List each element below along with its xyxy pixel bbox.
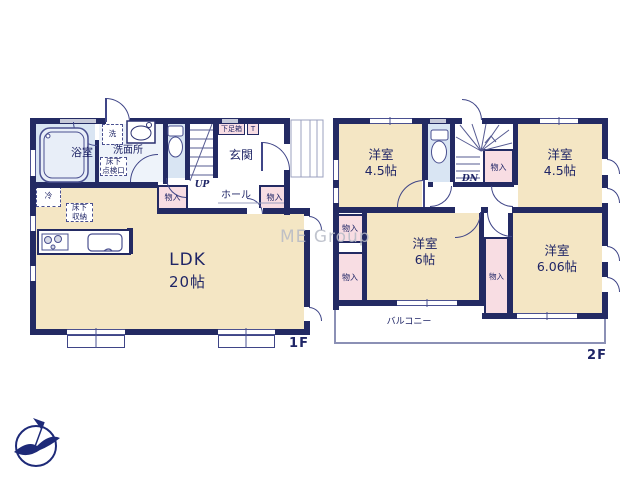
wall-segment bbox=[333, 118, 339, 310]
wall-segment bbox=[185, 118, 190, 180]
window bbox=[30, 150, 36, 176]
underfloor-hatch-label: 床下点検口 bbox=[102, 158, 125, 175]
staircase-1f bbox=[190, 124, 213, 181]
wall-segment bbox=[479, 213, 484, 303]
window bbox=[218, 329, 275, 335]
window bbox=[397, 300, 457, 306]
wall-segment bbox=[284, 118, 290, 144]
closet-label: 物入 bbox=[489, 271, 504, 282]
door-arc bbox=[462, 99, 482, 120]
window-arc bbox=[607, 159, 620, 174]
bath-label: 浴室 bbox=[56, 146, 108, 160]
window bbox=[222, 119, 238, 123]
door-arc bbox=[430, 186, 452, 207]
closet-label: 物入 bbox=[342, 272, 358, 283]
door-arc bbox=[106, 98, 130, 122]
hall-label: ホール bbox=[206, 189, 266, 202]
window-arc bbox=[607, 188, 620, 203]
wall-segment bbox=[157, 208, 249, 214]
wall-segment bbox=[450, 118, 455, 182]
floor1-tag: 1F bbox=[286, 336, 312, 353]
wall-segment bbox=[127, 228, 133, 254]
closet-label: 物入 bbox=[267, 192, 283, 203]
washing-machine-box: 洗 bbox=[102, 124, 123, 145]
entrance-label: 玄関 bbox=[216, 148, 266, 164]
closet-2f-center: 物入 bbox=[483, 149, 514, 185]
entrance-door-arc bbox=[262, 142, 290, 170]
room-se-label: 洋室6.06帖 bbox=[527, 243, 587, 276]
door-leaf bbox=[423, 180, 425, 207]
door-leaf bbox=[105, 98, 107, 122]
closet-2f-west-lower: 物入 bbox=[336, 252, 364, 302]
dn-label: DN bbox=[458, 174, 482, 186]
window bbox=[540, 118, 578, 124]
underfloor-storage-box: 床下収納 bbox=[66, 203, 93, 222]
bay-window bbox=[67, 335, 125, 348]
room-ldk-left bbox=[36, 188, 157, 329]
window-arc bbox=[607, 277, 620, 292]
fridge-label: 冷 bbox=[45, 192, 53, 201]
window bbox=[370, 118, 412, 124]
underfloor-storage-label: 床下収納 bbox=[72, 204, 87, 221]
window bbox=[30, 266, 36, 281]
room-ne-label: 洋室4.5帖 bbox=[531, 147, 589, 180]
porch-steps bbox=[291, 120, 323, 177]
window bbox=[333, 188, 339, 203]
window-arc bbox=[607, 246, 620, 261]
room-nw-label: 洋室4.5帖 bbox=[352, 147, 410, 180]
window bbox=[430, 119, 446, 123]
floor2-tag: 2F bbox=[584, 348, 610, 365]
shoe-box-label: 下足箱 bbox=[221, 124, 242, 134]
washing-machine-label: 洗 bbox=[109, 130, 117, 139]
compass-icon bbox=[14, 418, 60, 466]
room-sw-label: 洋室6帖 bbox=[397, 236, 453, 269]
ldk-label: LDK20帖 bbox=[150, 249, 225, 293]
window bbox=[30, 216, 36, 231]
floorplan-page: { "watermark": "ME Group", "floor1": { "… bbox=[0, 0, 640, 480]
room-toilet-1f bbox=[168, 124, 185, 178]
window bbox=[67, 329, 125, 335]
closet-label: 物入 bbox=[491, 162, 507, 173]
window bbox=[333, 160, 339, 180]
fridge-box: 冷 bbox=[36, 186, 61, 207]
room-toilet-2f bbox=[428, 124, 450, 182]
door-arc bbox=[487, 212, 512, 237]
wall-segment bbox=[30, 182, 158, 188]
wall-segment bbox=[163, 118, 168, 184]
bay-window bbox=[218, 335, 275, 348]
wall-segment bbox=[422, 118, 428, 180]
closet-2f-mid: 物入 bbox=[484, 237, 509, 315]
window bbox=[517, 313, 577, 319]
door-arc bbox=[491, 186, 513, 207]
washroom-label: 洗面所 bbox=[102, 144, 154, 157]
balcony-label: バルコニー bbox=[377, 317, 441, 329]
wall-segment bbox=[513, 118, 518, 185]
shoe-box-t-label: T bbox=[251, 125, 255, 133]
window-arc bbox=[309, 307, 322, 321]
wall-segment bbox=[284, 170, 290, 215]
watermark: ME Group bbox=[280, 227, 371, 247]
